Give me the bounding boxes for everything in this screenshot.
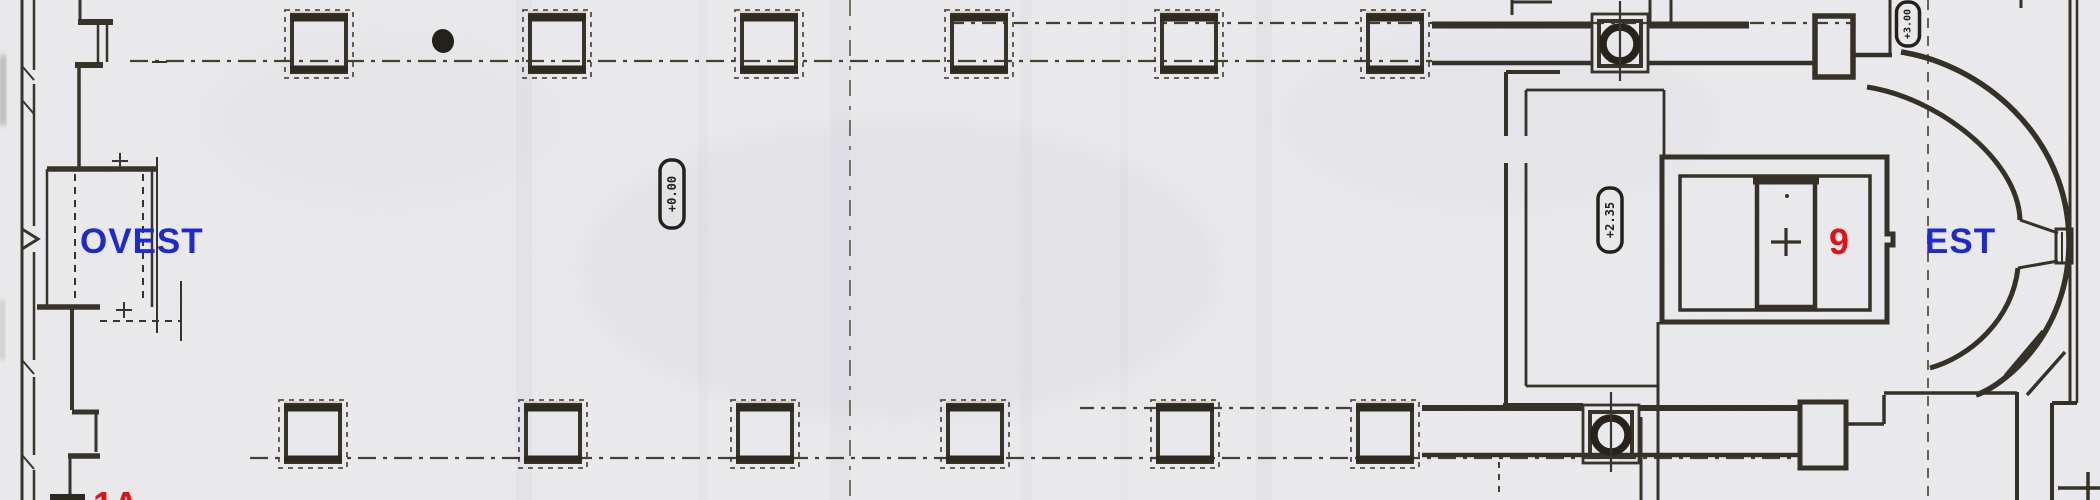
label-corner-ref: 1A [93, 484, 139, 500]
label-altar-number: 9 [1829, 221, 1849, 263]
scanned-floor-plan-page: +0.00+2.35+3.00 OVEST EST 9 1A [0, 0, 2100, 500]
label-est: EST [1925, 222, 1996, 262]
label-ovest: OVEST [80, 222, 204, 262]
floor-plan-canvas: +0.00+2.35+3.00 [0, 0, 2100, 500]
scan-noise-overlay [0, 0, 2100, 500]
